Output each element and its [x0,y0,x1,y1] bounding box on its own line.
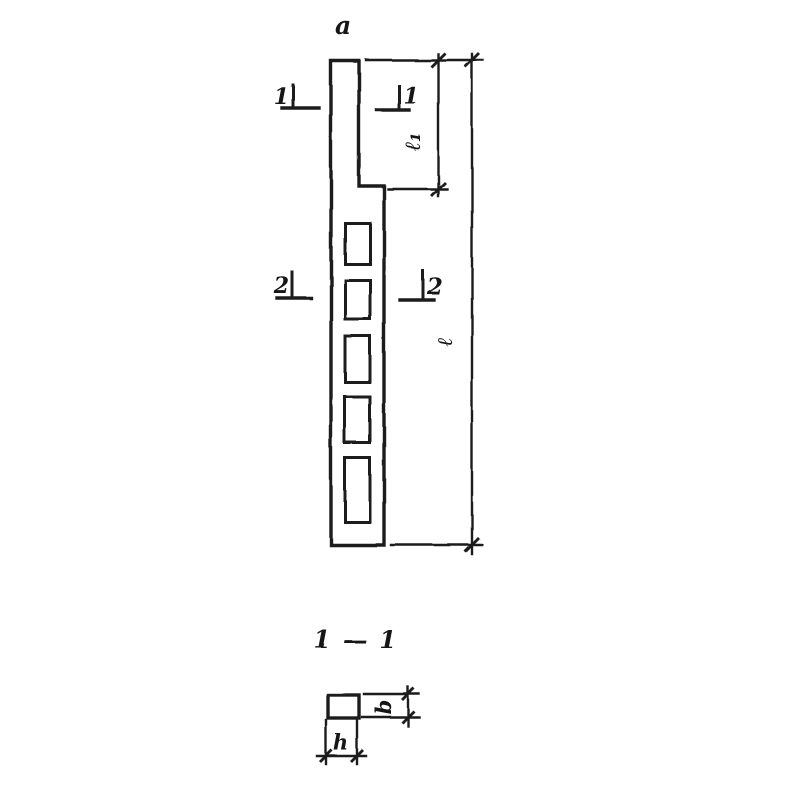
view-label: a [335,11,351,40]
section-mark-1-right-label: 1 [403,83,418,109]
dimension-h: h [317,720,366,764]
dimension-l1: ℓ₁ [366,53,483,196]
elevation-view: a 1 [273,11,483,554]
section-body [328,695,359,718]
dimension-l-total: ℓ [391,53,482,554]
section-mark-2-left: 2 [273,272,311,299]
opening-1 [345,223,370,264]
section-mark-2-right-label: 2 [426,274,442,300]
section-mark-2-left-label: 2 [273,273,289,299]
dim-label-b: b [371,700,396,715]
opening-5 [345,458,370,522]
section-mark-1-left: 1 [274,84,319,110]
opening-2 [345,280,370,319]
technical-drawing: a 1 [0,0,800,800]
cross-section-title: 1 — 1 [314,625,398,654]
section-mark-2-right: 2 [400,271,442,300]
dim-label-l: ℓ [432,337,457,346]
cross-section-view: 1 — 1 b [314,625,419,764]
dim-label-h: h [333,730,348,755]
drawing-sheet: a 1 [0,0,800,800]
opening-3 [345,336,370,382]
dim-label-l1: ℓ₁ [400,133,425,151]
openings [345,223,370,522]
section-mark-1-left-label: 1 [274,84,289,110]
dimension-b: b [362,687,419,726]
section-mark-1-right: 1 [377,83,418,110]
opening-4 [345,397,370,443]
